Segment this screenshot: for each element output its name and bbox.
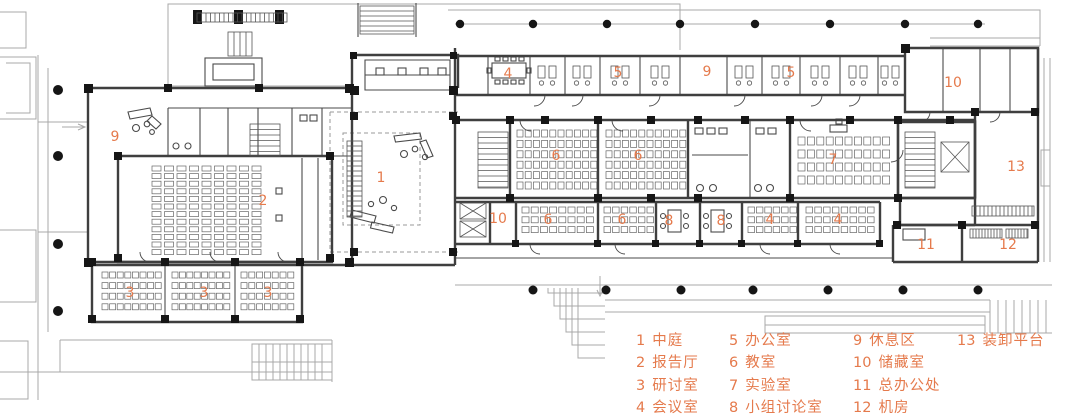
room-number-label: 8 (665, 214, 674, 228)
room-number-label: 6 (634, 149, 643, 163)
room-number-label: 4 (834, 213, 843, 227)
room-number-label: 9 (703, 65, 712, 79)
room-number-label: 3 (264, 286, 273, 300)
dashed-atrium-boundary (330, 112, 458, 252)
room-number-label: 13 (1007, 160, 1025, 174)
room-number-label: 3 (200, 286, 209, 300)
room-number-label: 7 (829, 153, 838, 167)
walls (88, 48, 1038, 322)
room-number-label: 10 (489, 212, 507, 226)
room-number-label: 6 (552, 149, 561, 163)
room-number-label: 8 (717, 214, 726, 228)
room-number-label: 10 (944, 76, 962, 90)
room-number-label: 4 (766, 213, 775, 227)
room-number-label: 12 (999, 238, 1017, 252)
partitions (128, 3, 1010, 322)
room-number-label: 2 (259, 194, 268, 208)
floor-plan-drawing (0, 0, 1080, 415)
room-number-label: 5 (614, 66, 623, 80)
room-number-label: 9 (111, 130, 120, 144)
room-number-label: 6 (618, 213, 627, 227)
room-number-label: 3 (126, 286, 135, 300)
room-number-label: 1 (377, 171, 386, 185)
room-number-label: 5 (787, 66, 796, 80)
room-number-label: 11 (917, 238, 935, 252)
room-number-label: 6 (544, 213, 553, 227)
floor-plan-page: 92145951066713106688441112333 1中庭2报告厅3研讨… (0, 0, 1080, 415)
room-number-label: 4 (504, 67, 513, 81)
